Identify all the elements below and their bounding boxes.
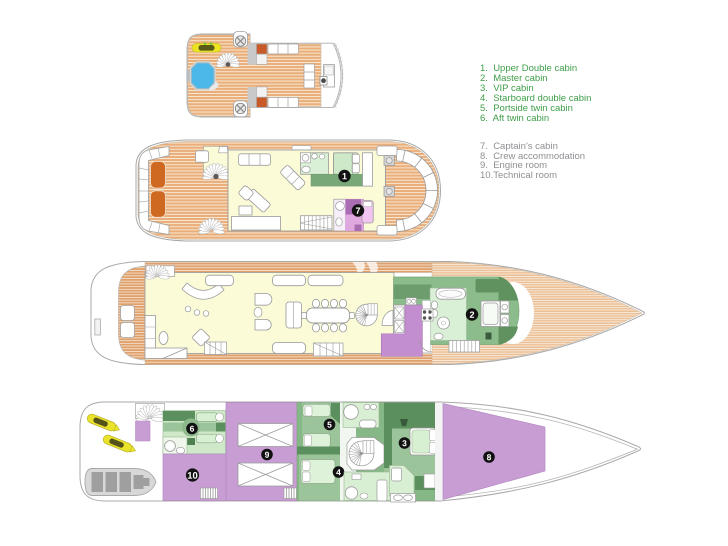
svg-text:5: 5 [327, 420, 332, 430]
svg-text:7: 7 [355, 206, 360, 216]
svg-text:9: 9 [265, 450, 270, 460]
svg-text:10: 10 [187, 471, 198, 482]
svg-text:1: 1 [342, 171, 347, 181]
svg-text:6: 6 [190, 424, 195, 434]
svg-text:2: 2 [469, 310, 474, 320]
svg-text:8: 8 [487, 452, 492, 462]
svg-text:3: 3 [402, 438, 407, 448]
svg-text:4: 4 [336, 467, 341, 477]
